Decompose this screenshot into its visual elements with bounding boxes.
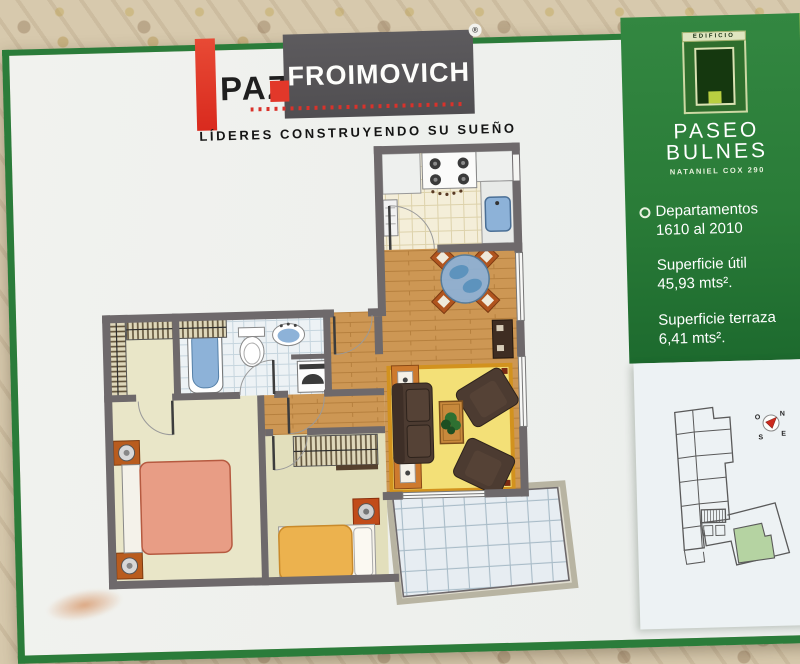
detail-value: 1610 al 2010 xyxy=(656,217,800,240)
kitchen-cabinet xyxy=(382,153,421,194)
kitchen-counter xyxy=(476,151,514,182)
stove xyxy=(422,152,477,189)
svg-text:N: N xyxy=(780,411,785,418)
toilet xyxy=(238,327,265,367)
svg-text:E: E xyxy=(781,431,786,438)
photo-artifact xyxy=(43,583,125,627)
detail-superficie-util: Superficie útil 45,93 mts². xyxy=(657,253,800,295)
building-panel: EDIFICIO PASEO BULNES NATANIEL COX 290 D… xyxy=(620,13,800,364)
coffee-table xyxy=(439,401,463,444)
dining-table xyxy=(441,254,490,303)
building-name-line2: BULNES xyxy=(624,139,800,165)
logo-red-bar xyxy=(195,38,217,130)
bullet-icon xyxy=(639,207,650,218)
brand-word-froimovich: FROIMOVICH xyxy=(287,56,470,92)
single-bed xyxy=(279,524,376,580)
svg-text:S: S xyxy=(758,434,763,441)
building-emblem: EDIFICIO xyxy=(682,31,748,115)
compass-icon: N E S O xyxy=(755,411,787,442)
sofa xyxy=(392,383,434,464)
washing-machine xyxy=(297,361,328,393)
registered-mark-icon: ® xyxy=(468,23,481,36)
terrace xyxy=(389,483,576,602)
svg-text:O: O xyxy=(755,414,761,421)
detail-departamentos: Departamentos 1610 al 2010 xyxy=(655,199,800,241)
site-plan-panel: N E S O xyxy=(633,359,800,630)
brochure-page: PAZ FROIMOVICH ® LÍDERES CONSTRUYENDO SU… xyxy=(2,29,800,664)
emblem-icon xyxy=(682,41,748,115)
floor-plan xyxy=(86,136,643,615)
detail-value: 45,93 mts². xyxy=(657,272,800,295)
living-room xyxy=(388,363,522,500)
detail-value: 6,41 mts². xyxy=(659,326,800,349)
building-address: NATANIEL COX 290 xyxy=(624,164,800,178)
emblem-door-icon xyxy=(708,91,721,103)
site-plan: N E S O xyxy=(633,359,800,630)
highlighted-unit xyxy=(734,523,775,563)
logo-red-square xyxy=(270,81,290,102)
double-bed xyxy=(122,460,232,555)
building-name: PASEO BULNES xyxy=(623,118,800,166)
detail-superficie-terraza: Superficie terraza 6,41 mts². xyxy=(658,308,800,350)
